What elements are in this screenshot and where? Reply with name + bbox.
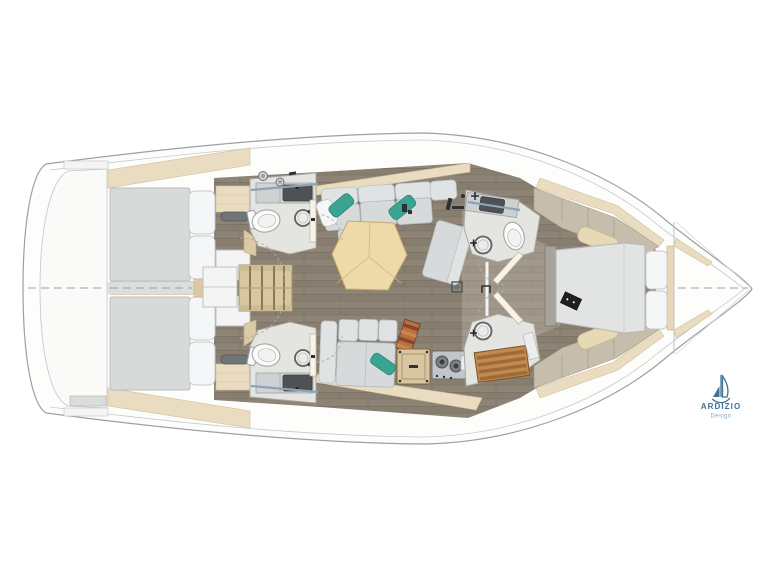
round-basin bbox=[475, 237, 492, 254]
companionway bbox=[203, 265, 292, 311]
transom-step-top bbox=[64, 161, 108, 169]
hull-window bbox=[221, 212, 248, 221]
double-bed bbox=[110, 188, 190, 281]
clutch-icon bbox=[452, 206, 464, 209]
sailboat-icon bbox=[712, 375, 730, 403]
bed-foot-dresser bbox=[545, 246, 556, 326]
hull-window bbox=[221, 355, 248, 364]
floor-plan-drawing: ARDIZIO Design bbox=[0, 0, 768, 576]
deck-fitting-icon bbox=[408, 210, 412, 214]
galley-settee bbox=[319, 318, 397, 388]
transom-step-bottom bbox=[64, 408, 108, 416]
logo-subtitle: Design bbox=[710, 414, 731, 420]
pillow bbox=[646, 251, 667, 289]
headboard bbox=[667, 246, 674, 330]
logo: ARDIZIO Design bbox=[701, 375, 742, 420]
liferaft-locker bbox=[70, 396, 106, 406]
pocket-door-track bbox=[486, 262, 489, 316]
locker-handle bbox=[409, 365, 418, 368]
logo-brand: ARDIZIO bbox=[701, 402, 742, 411]
island-bed bbox=[556, 243, 645, 333]
aft-cabin-starboard bbox=[108, 148, 250, 286]
shelf-unit bbox=[216, 364, 250, 390]
double-bed bbox=[110, 297, 190, 390]
canvas: ARDIZIO Design bbox=[0, 0, 768, 576]
aft-cabin-port bbox=[108, 290, 250, 428]
deck-fitting-icon bbox=[402, 204, 407, 212]
pillow bbox=[646, 291, 667, 329]
mast-base bbox=[454, 284, 460, 290]
round-basin bbox=[475, 323, 492, 340]
pillow bbox=[189, 191, 215, 234]
pillow bbox=[189, 342, 215, 385]
shelf-unit bbox=[216, 186, 250, 212]
